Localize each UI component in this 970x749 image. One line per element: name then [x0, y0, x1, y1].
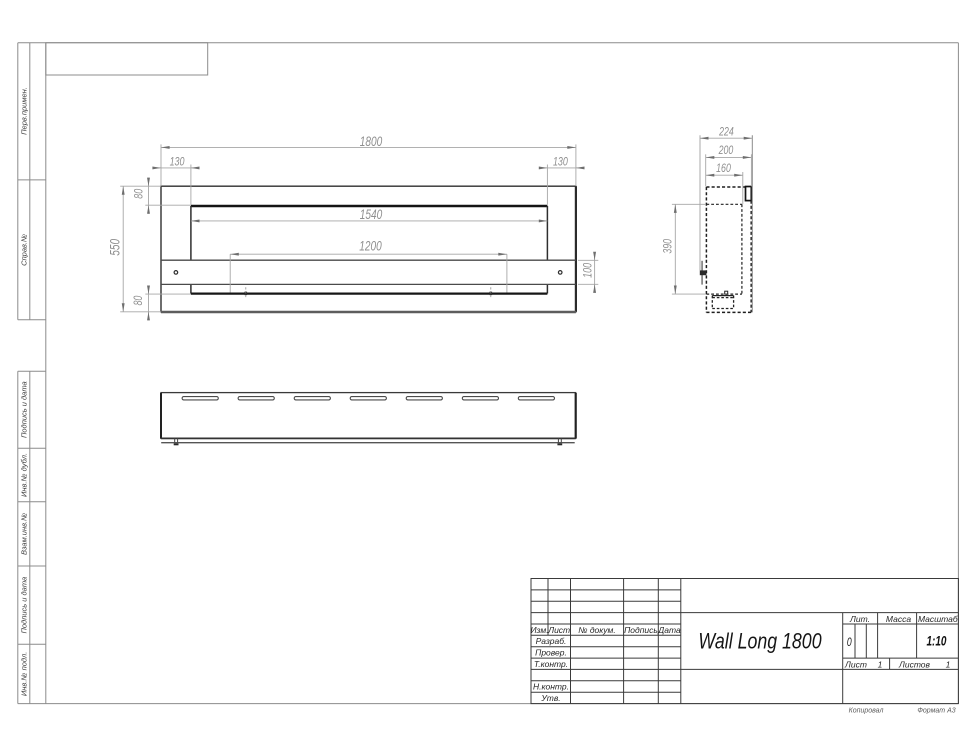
- svg-text:1: 1: [946, 659, 951, 669]
- svg-text:Разраб.: Разраб.: [536, 636, 567, 646]
- svg-text:224: 224: [718, 125, 734, 139]
- svg-text:80: 80: [132, 189, 146, 199]
- svg-text:550: 550: [107, 239, 123, 256]
- svg-text:390: 390: [661, 239, 675, 254]
- svg-text:1: 1: [878, 659, 883, 669]
- svg-text:Копировал: Копировал: [849, 708, 884, 715]
- svg-text:Подпись и дата: Подпись и дата: [20, 381, 29, 438]
- svg-text:Н.контр.: Н.контр.: [533, 682, 569, 692]
- svg-text:1:10: 1:10: [927, 633, 947, 649]
- svg-text:1200: 1200: [359, 238, 382, 254]
- svg-text:Провер.: Провер.: [535, 647, 567, 657]
- svg-text:1540: 1540: [360, 207, 383, 223]
- svg-text:Лит.: Лит.: [849, 614, 870, 624]
- svg-text:Подпись и дата: Подпись и дата: [20, 577, 29, 634]
- svg-text:80: 80: [132, 296, 146, 306]
- svg-text:Листов: Листов: [898, 659, 931, 669]
- svg-text:Формат А3: Формат А3: [917, 708, 955, 715]
- svg-text:Подпись: Подпись: [624, 625, 658, 635]
- svg-text:Дата: Дата: [657, 625, 681, 635]
- svg-text:Справ.№: Справ.№: [20, 234, 29, 266]
- svg-text:160: 160: [716, 161, 731, 175]
- svg-text:130: 130: [553, 155, 568, 169]
- svg-text:Масса: Масса: [886, 614, 911, 624]
- svg-text:Изм.: Изм.: [530, 625, 548, 635]
- svg-text:Лист: Лист: [844, 659, 867, 669]
- svg-text:№ докум.: № докум.: [578, 625, 615, 635]
- svg-text:Инв.№ подл.: Инв.№ подл.: [20, 652, 29, 696]
- svg-text:100: 100: [581, 263, 595, 278]
- svg-text:Инв.№ дубл.: Инв.№ дубл.: [20, 453, 29, 497]
- svg-text:Утв.: Утв.: [540, 693, 560, 703]
- svg-text:Масштаб: Масштаб: [918, 614, 959, 624]
- svg-text:1800: 1800: [360, 133, 383, 149]
- svg-text:130: 130: [170, 155, 185, 169]
- svg-text:Лист: Лист: [547, 625, 570, 635]
- svg-text:0: 0: [847, 637, 852, 650]
- svg-text:Т.контр.: Т.контр.: [534, 659, 568, 669]
- svg-text:Взам.инв.№: Взам.инв.№: [20, 513, 29, 555]
- svg-text:Перв.примен.: Перв.примен.: [20, 87, 29, 135]
- svg-text:200: 200: [718, 143, 734, 157]
- svg-text:Wall Long 1800: Wall Long 1800: [698, 630, 822, 654]
